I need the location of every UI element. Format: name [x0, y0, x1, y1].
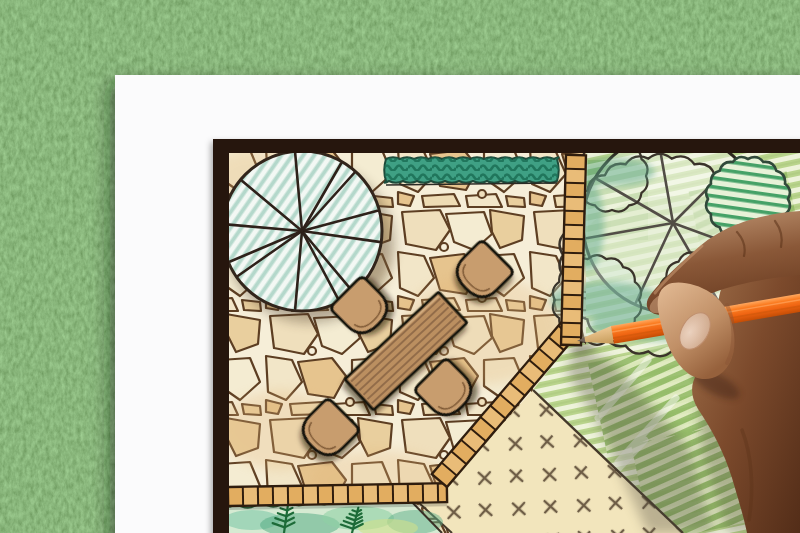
photo-scene	[0, 0, 800, 533]
tile-border-bottom	[228, 483, 447, 508]
hedge	[384, 157, 559, 185]
garden-plan-photo	[0, 0, 800, 533]
tile-border-right	[561, 155, 586, 345]
